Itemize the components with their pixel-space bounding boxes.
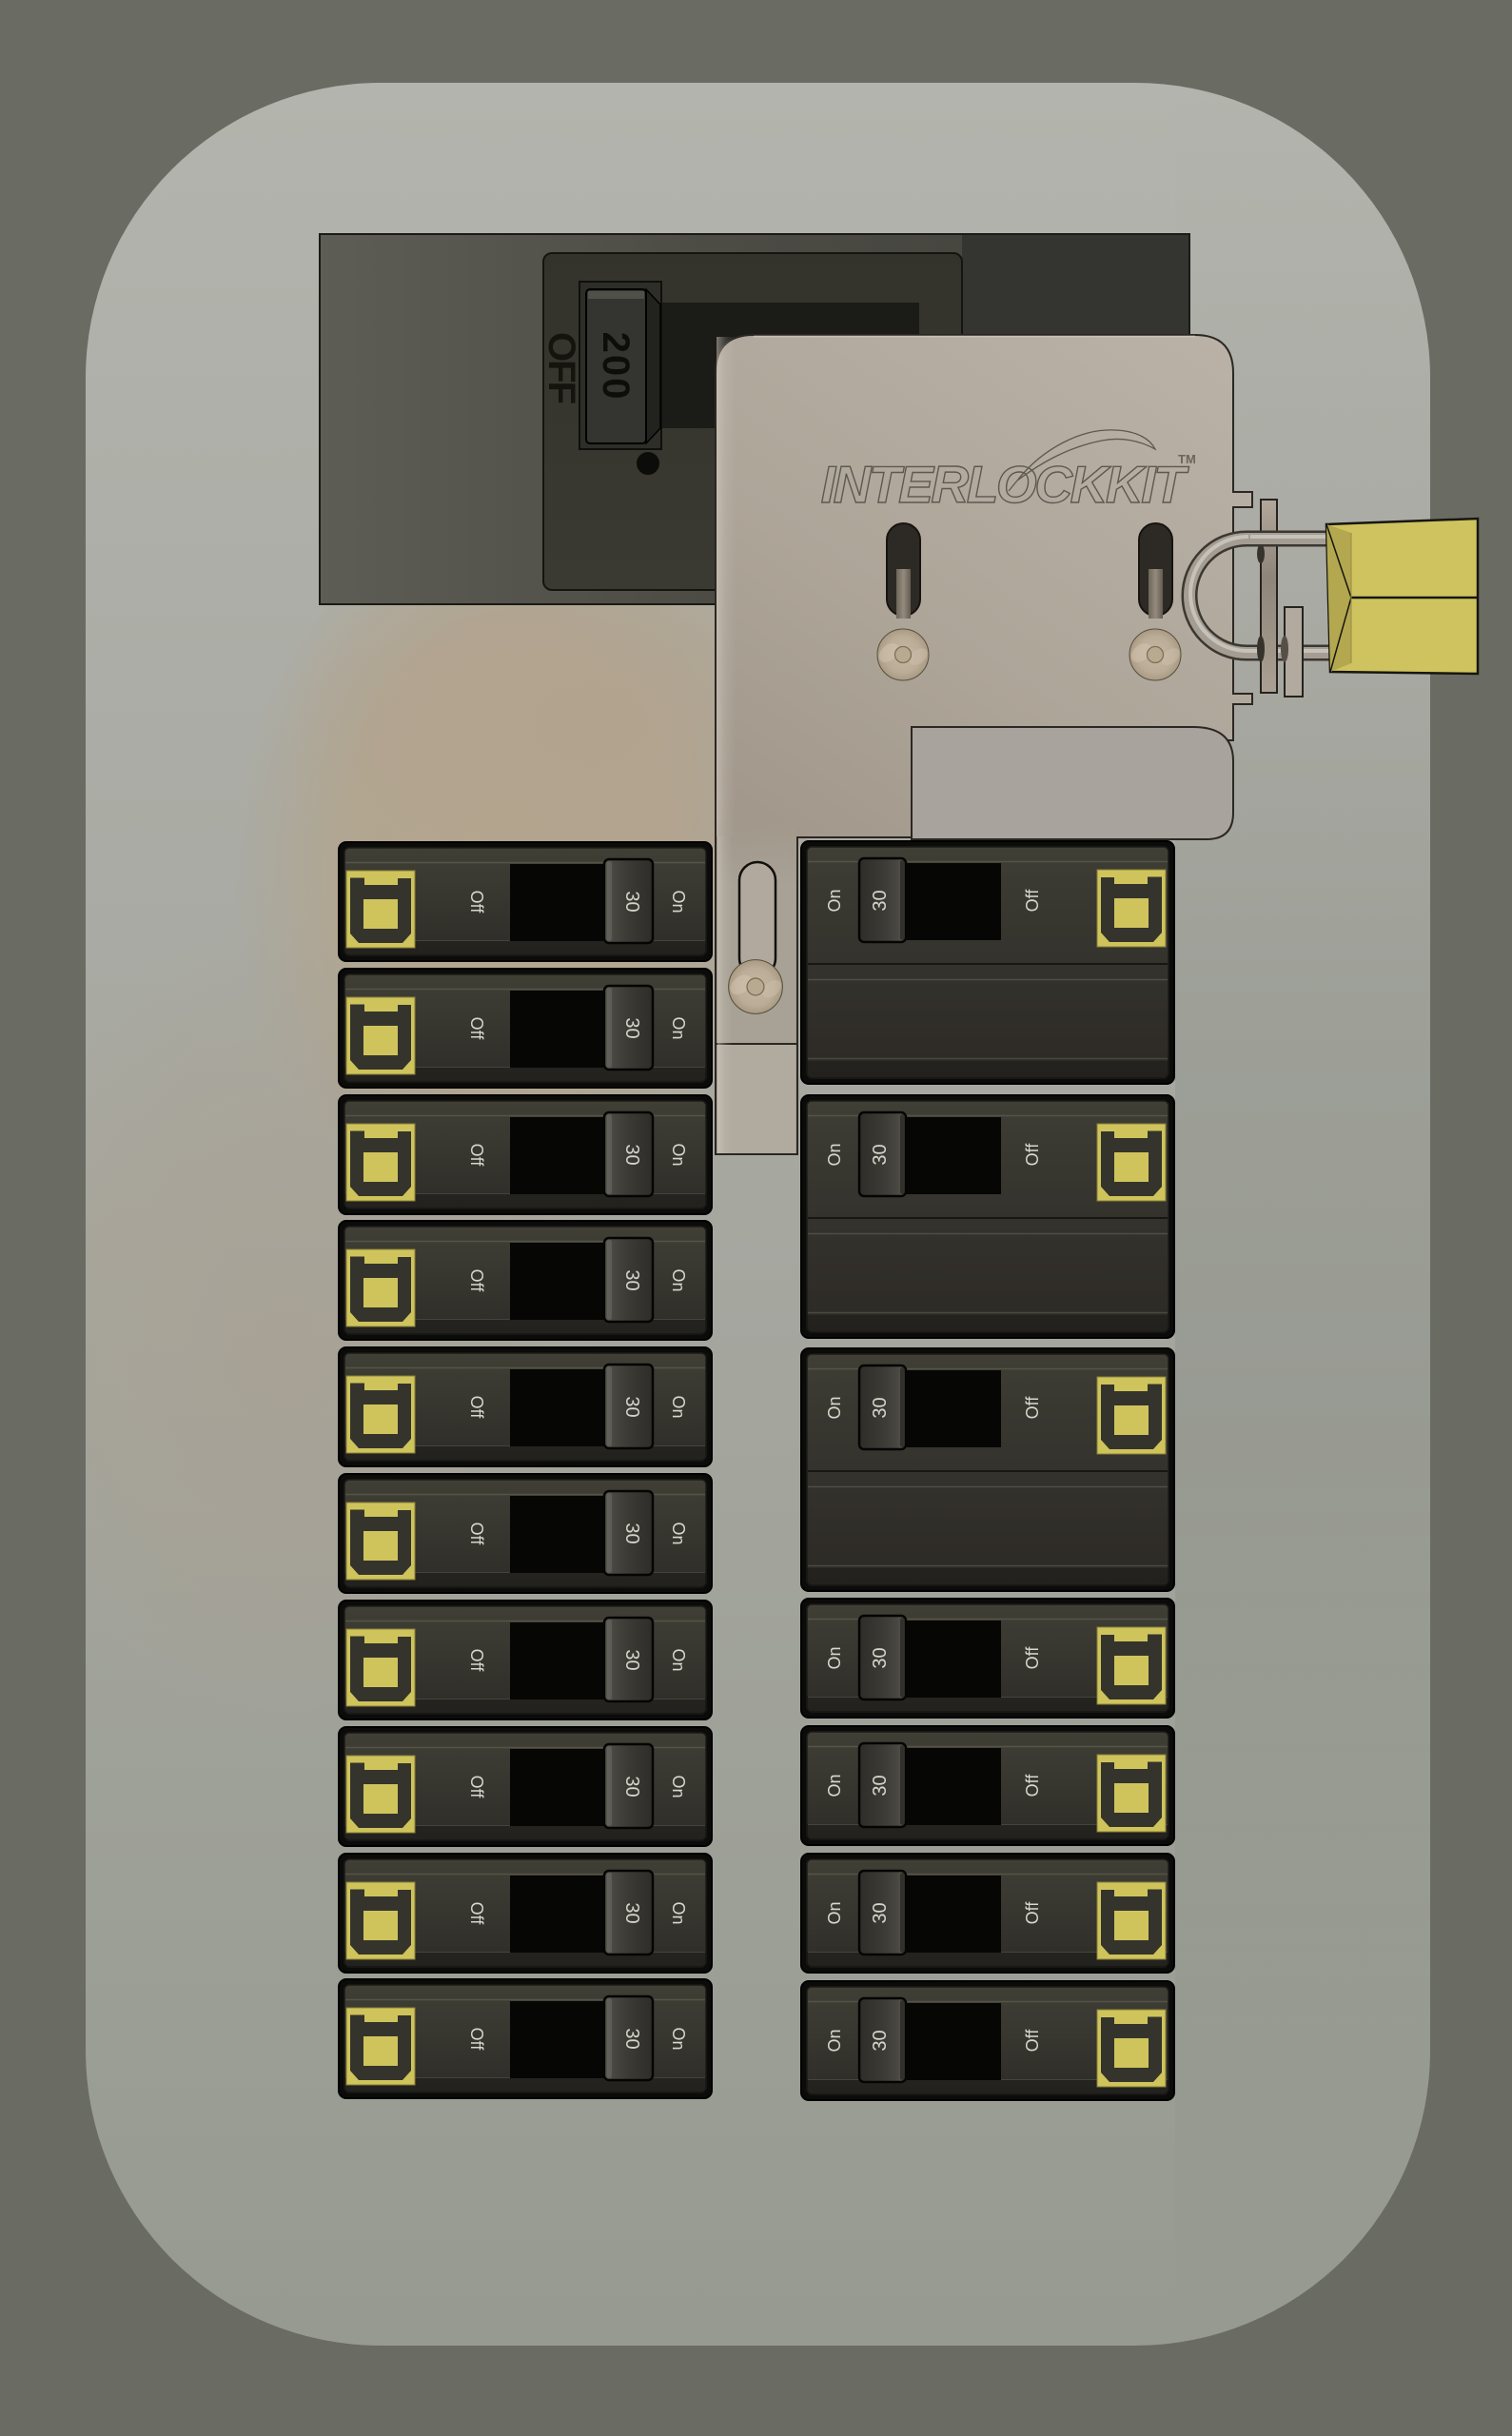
svg-text:OFF: OFF	[540, 332, 582, 403]
svg-text:200: 200	[595, 332, 637, 402]
svg-text:INTERLOCKKIT: INTERLOCKKIT	[821, 455, 1189, 514]
svg-text:TM: TM	[1178, 452, 1196, 466]
